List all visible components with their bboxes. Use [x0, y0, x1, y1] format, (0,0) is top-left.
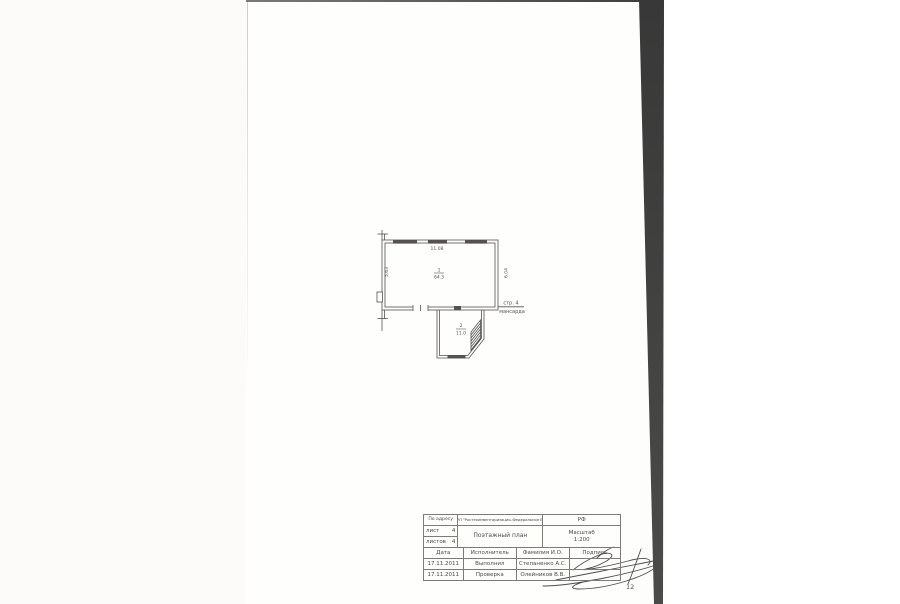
title-block: По адресу лист 4 листов 4 ФГУП "Ростехин… [423, 514, 621, 581]
row1-name: Степаненко А.С. [517, 559, 569, 570]
room2-area: 11.0 [456, 331, 466, 337]
row1-signature-cell [570, 559, 620, 570]
sheets-cell: листов 4 [424, 537, 458, 547]
organization-cell: ФГУП "Ростехинвентаризация–Федеральное Б… [458, 515, 543, 526]
row1-date: 17.11.2011 [424, 559, 464, 570]
address-label-cell: По адресу [424, 515, 458, 526]
scale-cell: Масштаб 1:200 [543, 526, 620, 547]
floor-note-floor: мансарда [499, 309, 525, 315]
checker-row: 17.11.2011 Проверка Олейников В.В. [424, 570, 620, 581]
dim-top-label: 11.08 [431, 246, 444, 252]
window-blocks [393, 240, 487, 358]
row2-role: Проверка [464, 570, 517, 581]
sheets-label: листов [426, 539, 446, 545]
dim-left-label: 5.63 [384, 267, 390, 277]
col-signature-header: Подпись [570, 548, 620, 559]
floor-note-page: стр. 4 [503, 301, 518, 307]
room1-area: 64.3 [434, 275, 444, 281]
title-block-upper: По адресу лист 4 листов 4 ФГУП "Ростехин… [424, 515, 620, 547]
room2-number: 2 [460, 323, 463, 329]
row2-date: 17.11.2011 [424, 570, 464, 581]
sheet-value: 4 [452, 528, 456, 534]
sheet-label: лист [426, 528, 439, 534]
scale-value: 1:200 [574, 537, 590, 543]
row2-name: Олейников В.В. [517, 570, 569, 581]
dim-right-label: 6.04 [504, 268, 510, 278]
fraction-lines [434, 273, 466, 329]
walls [377, 230, 524, 358]
plan-labels: 11.08 5.63 6.04 1 64.3 2 11.0 стр. 4 ман… [384, 246, 525, 337]
document-title: Поэтажный план [458, 526, 543, 547]
col-name-header: Фамилия И.О. [517, 548, 569, 559]
sheet-cell: лист 4 [424, 526, 458, 537]
title-block-lower: Дата Исполнитель Фамилия И.О. Подпись 17… [424, 547, 620, 581]
country-cell: РФ [543, 515, 620, 526]
sheets-value: 4 [452, 539, 456, 545]
executor-header-row: Дата Исполнитель Фамилия И.О. Подпись [424, 548, 620, 559]
col-date-header: Дата [424, 548, 464, 559]
row2-signature-cell [570, 570, 620, 581]
page-number: 12 [626, 583, 634, 591]
scanned-page: 11.08 5.63 6.04 1 64.3 2 11.0 стр. 4 ман… [0, 0, 900, 604]
executor-row: 17.11.2011 Выполнил Степаненко А.С. [424, 559, 620, 570]
col-executor-header: Исполнитель [464, 548, 517, 559]
room1-number: 1 [438, 268, 441, 274]
row1-role: Выполнил [464, 559, 517, 570]
